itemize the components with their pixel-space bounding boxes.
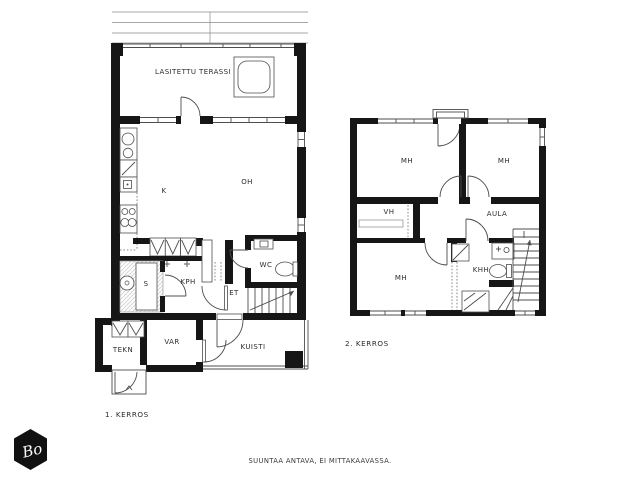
floorplan-canvas: LASITETTU TERASSI K OH WC KPH S ET TEKN … (0, 0, 640, 480)
kitchen-fixtures (120, 128, 137, 250)
sink-icon (122, 133, 134, 145)
toilet-icon (276, 262, 298, 276)
sauna-stove-icon (120, 276, 134, 290)
floor2-caption: 2. KERROS (345, 339, 389, 348)
porch-pillar (285, 351, 303, 368)
room-label-mh2: MH (498, 157, 510, 165)
room-label-terassi: LASITETTU TERASSI (155, 68, 231, 76)
room-label-sauna: S (144, 280, 149, 288)
room-label-kph: KPH (180, 278, 195, 286)
room-label-mh1: MH (401, 157, 413, 165)
toilet-icon (490, 265, 512, 278)
mh2-door (468, 176, 489, 197)
front-door (217, 314, 243, 347)
room-label-living: OH (241, 178, 253, 186)
chimney (202, 240, 212, 282)
interior-walls-floor2 (350, 124, 546, 310)
room-label-aula: AULA (487, 210, 507, 218)
var-door (203, 340, 227, 362)
stairs-arrow (527, 240, 532, 246)
window (540, 128, 545, 146)
annex-tekn-var (95, 318, 226, 394)
closet-shelf (359, 220, 403, 227)
wardrobe-icon (150, 238, 196, 256)
floor1-plan: LASITETTU TERASSI K OH WC KPH S ET TEKN … (95, 12, 308, 419)
exterior-walls-floor2 (350, 110, 546, 317)
stairs-floor1 (248, 288, 294, 313)
window (378, 119, 528, 123)
mh3-door (425, 243, 447, 265)
kph-door (202, 286, 228, 310)
room-label-mh3: MH (395, 274, 407, 282)
entry-step (112, 370, 146, 394)
terrace-door (181, 97, 200, 116)
room-label-khh: KHH (473, 266, 489, 274)
utility-fixtures (452, 243, 514, 312)
room-label-var: VAR (164, 338, 179, 346)
understair-storage (462, 291, 489, 312)
shower-icon (164, 261, 190, 267)
wc-sink-icon (254, 239, 273, 249)
floor2-plan: MH MH VH AULA MH KHH 2. KERROS (345, 110, 546, 349)
room-label-vh: VH (384, 208, 395, 216)
khh-door (466, 219, 488, 241)
wardrobe-icon (112, 321, 144, 337)
room-label-tekn: TEKN (112, 346, 133, 354)
washer-icon (452, 244, 469, 261)
room-label-kitchen: K (161, 187, 166, 195)
room-label-wc: WC (260, 261, 273, 269)
hot-tub-icon (234, 57, 274, 97)
room-label-et: ET (229, 289, 239, 297)
utility-sink-icon (492, 243, 514, 259)
roof-eaves (112, 12, 308, 43)
footer-note: SUUNTAA ANTAVA, EI MITTAKAAVASSA. (249, 457, 392, 465)
brand-logo: Bo (14, 429, 47, 470)
mh1-door (440, 176, 461, 197)
floorplan-page: LASITETTU TERASSI K OH WC KPH S ET TEKN … (0, 0, 640, 480)
sauna (120, 261, 186, 312)
bathroom-kph (202, 240, 233, 310)
floor1-caption: 1. KERROS (105, 410, 149, 419)
room-label-kuisti: KUISTI (241, 343, 266, 351)
